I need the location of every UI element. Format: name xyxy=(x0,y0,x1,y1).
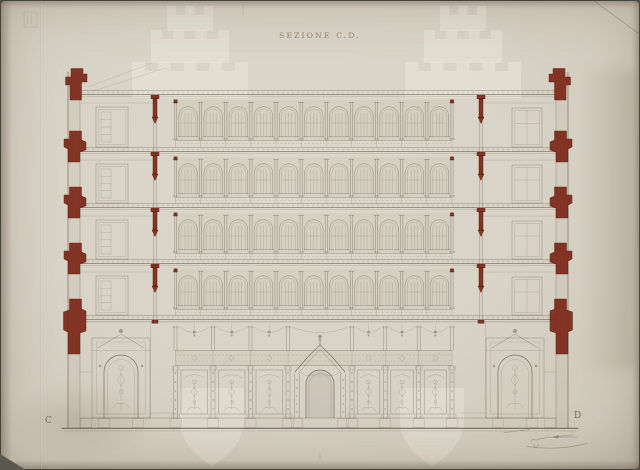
scale-note-and-signature xyxy=(504,430,587,449)
section-marker-d: D xyxy=(574,411,581,421)
base-and-ground-line xyxy=(62,418,578,431)
section-marker-c: C xyxy=(45,416,52,426)
central-canopy xyxy=(295,335,346,418)
shield-watermark xyxy=(180,388,244,466)
castle-watermark xyxy=(132,62,248,98)
section-drawing xyxy=(0,0,640,470)
drawing-title: SEZIONE C.D. xyxy=(0,31,640,40)
shield-watermark xyxy=(400,388,464,466)
castle-watermark xyxy=(440,6,486,31)
castle-watermark xyxy=(167,6,213,31)
